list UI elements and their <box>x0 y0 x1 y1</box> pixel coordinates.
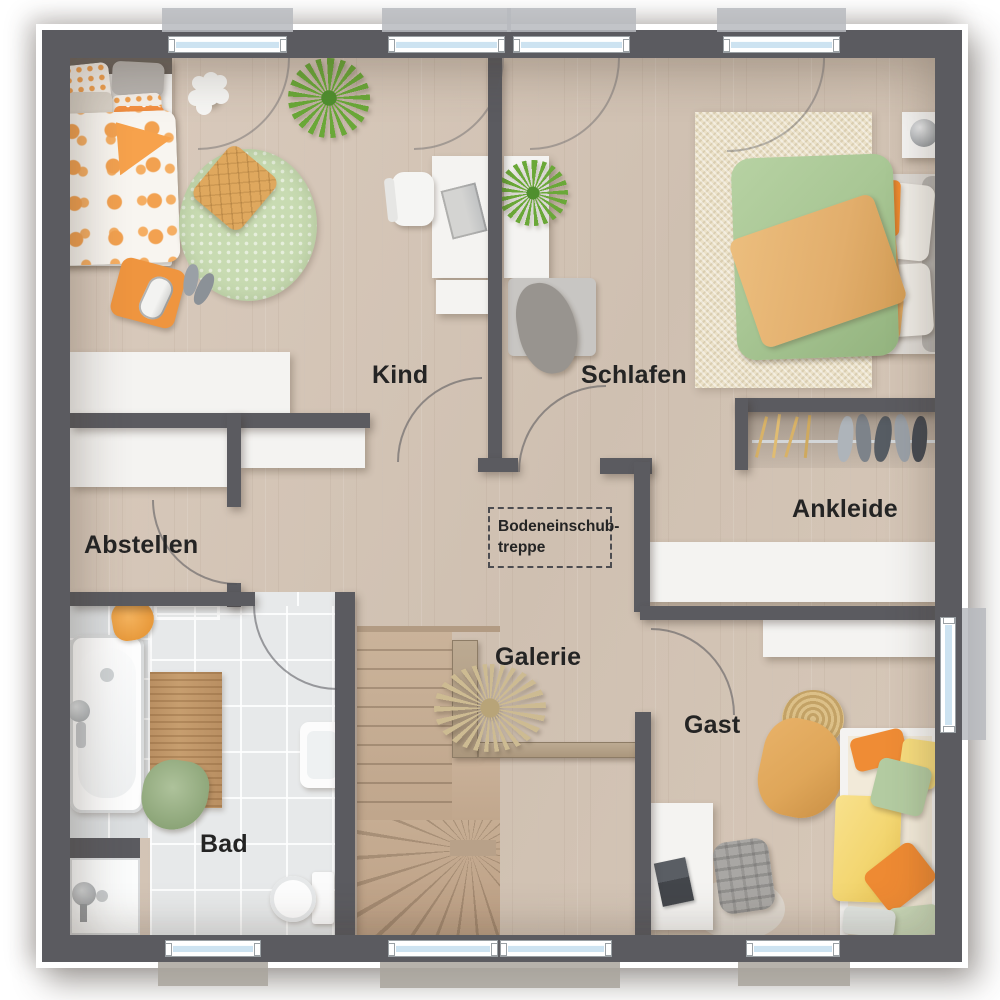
room-label-bad: Bad <box>200 830 248 859</box>
window-sill-bottom-2 <box>380 962 620 988</box>
wall-ankleide-north-cap <box>735 398 748 470</box>
window-sill-bottom-1 <box>158 962 268 986</box>
wall-kind-schlafen-cap <box>478 458 518 472</box>
window-glass <box>508 945 604 952</box>
staircase-top-edge <box>357 626 500 632</box>
window-sill-top-1 <box>162 8 293 32</box>
kind-duvet-polka-dots <box>51 110 180 266</box>
wall-kind-schlafen <box>488 58 502 460</box>
wall-gast-west <box>635 712 651 935</box>
staircase-winder-steps <box>357 820 500 935</box>
window-schlafen-1 <box>513 36 630 53</box>
kind-desk-drawer <box>436 280 492 314</box>
window-kind-1 <box>168 36 287 53</box>
gast-pillow-gray <box>842 905 897 938</box>
staircase-turn-landing <box>452 758 500 820</box>
shower-head <box>72 882 96 906</box>
room-label-schlafen: Schlafen <box>581 361 687 390</box>
toilet-bowl <box>270 876 316 922</box>
room-label-ankleide: Ankleide <box>792 495 898 524</box>
wall-ankleide-north <box>735 398 935 412</box>
window-glass <box>396 945 490 952</box>
room-label-abstellen: Abstellen <box>84 531 198 560</box>
hall-cabinet <box>240 427 365 468</box>
washbasin-bowl <box>307 731 337 779</box>
room-label-gast: Gast <box>684 711 740 740</box>
room-label-galerie: Galerie <box>495 643 581 672</box>
window-glass <box>173 945 253 952</box>
kind-pillow-gray <box>111 61 165 98</box>
window-sill-bottom-3 <box>738 962 850 986</box>
wall-outer-right <box>935 30 962 962</box>
window-sill-top-3 <box>507 8 636 32</box>
bath-door-threshold <box>253 592 335 606</box>
dried-grass-plant <box>434 664 546 752</box>
window-glass <box>521 41 622 48</box>
kind-desk-chair-seat <box>392 172 434 226</box>
window-glass <box>396 41 497 48</box>
wall-bad-east <box>335 592 355 935</box>
wall-bad-north <box>70 592 255 606</box>
bathtub-faucet <box>68 700 90 722</box>
schlafen-table-lamp <box>910 119 938 147</box>
wall-ankleide-gast <box>640 606 935 620</box>
window-galerie-right <box>500 940 612 957</box>
window-galerie-left <box>388 940 498 957</box>
gast-wardrobe <box>763 615 940 657</box>
shower-arm <box>80 904 87 922</box>
window-gast-south <box>746 940 840 957</box>
gast-pillow-green-bottom <box>888 903 941 938</box>
floor-plan: Kind Schlafen Abstellen Ankleide Bad Gal… <box>0 0 1000 1000</box>
wall-outer-left <box>42 30 70 962</box>
attic-stairs-line2: treppe <box>498 537 610 558</box>
window-sill-right <box>962 608 986 740</box>
window-glass <box>731 41 832 48</box>
attic-stairs-line1: Bodeneinschub- <box>498 516 610 537</box>
wall-kind-south <box>70 413 370 428</box>
window-bad <box>165 940 261 957</box>
schlafen-plant <box>498 160 568 226</box>
shower-drain <box>96 890 108 902</box>
bathtub-drain <box>100 668 114 682</box>
ankleide-cabinet <box>648 542 935 602</box>
window-sill-top-2 <box>382 8 511 32</box>
bathtub-faucet-handle <box>76 722 86 748</box>
window-sill-top-4 <box>717 8 846 32</box>
window-kind-2 <box>388 36 505 53</box>
wall-shower-partition <box>70 838 140 858</box>
window-gast-east <box>940 617 956 733</box>
abstellen-cabinet <box>70 427 227 487</box>
window-glass <box>945 625 952 725</box>
window-schlafen-2 <box>723 36 840 53</box>
wall-galerie-ankleide <box>634 462 650 612</box>
staircase-newel-block <box>450 840 496 856</box>
room-label-kind: Kind <box>372 361 428 390</box>
window-glass <box>176 41 279 48</box>
window-glass <box>754 945 832 952</box>
kind-sideboard <box>70 352 290 413</box>
attic-stairs-annotation: Bodeneinschub- treppe <box>488 507 612 568</box>
gast-pouf <box>711 836 776 915</box>
kind-potted-plant <box>288 58 370 138</box>
towel-rail <box>154 604 220 620</box>
wall-abstellen-east-upper <box>227 413 241 507</box>
